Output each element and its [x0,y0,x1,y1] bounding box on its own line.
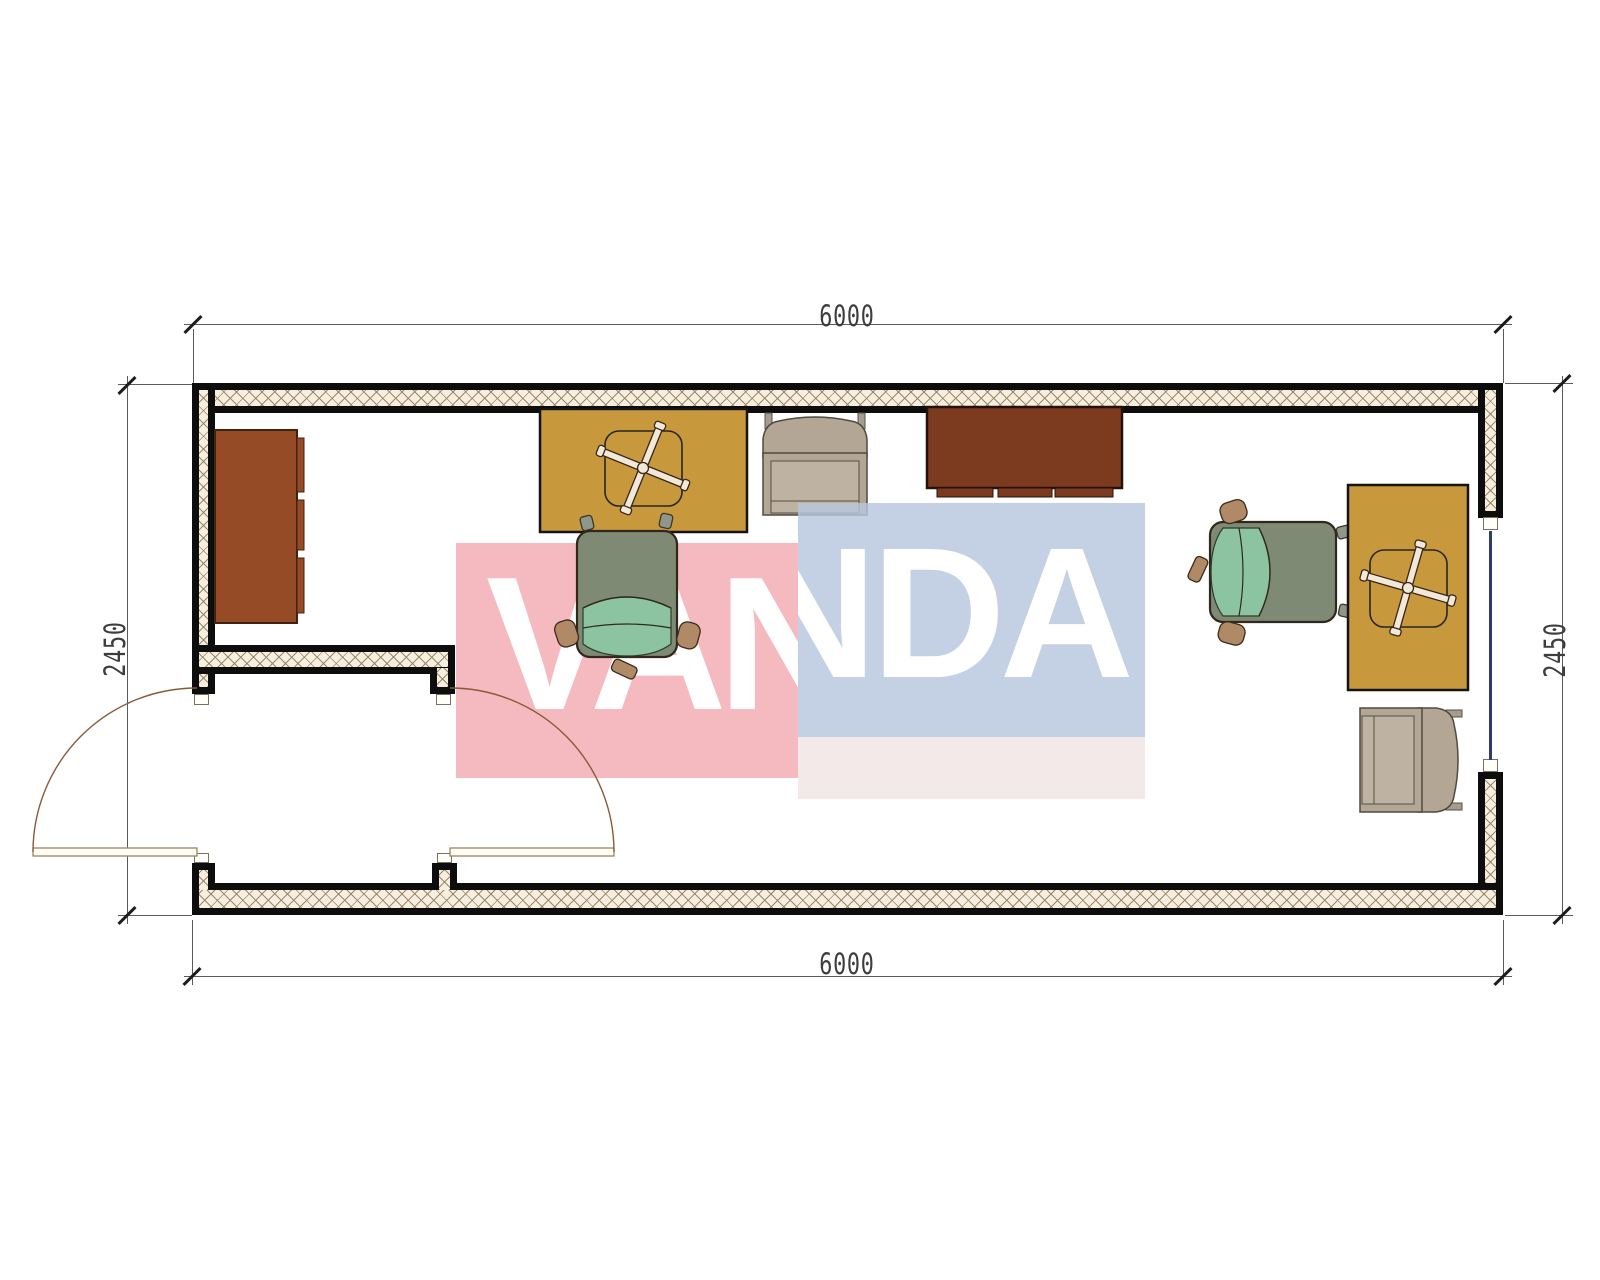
wardrobe-cabinet [215,430,304,623]
sideboard [927,407,1122,497]
office-chair-2 [1187,498,1354,647]
furniture-layer [0,0,1600,1280]
office-chair-1 [553,513,702,680]
floor-plan-canvas: 6000 6000 2450 2450 [0,0,1600,1280]
door-leaf-left [33,848,197,856]
door-leaf-right [450,848,614,856]
door-swing-arc-left [33,688,197,852]
door-swing-arc-right [450,688,614,852]
armchair-2 [1360,708,1462,812]
desk-2 [1347,485,1468,690]
desk-1 [540,404,747,532]
entry-doors [33,688,614,856]
